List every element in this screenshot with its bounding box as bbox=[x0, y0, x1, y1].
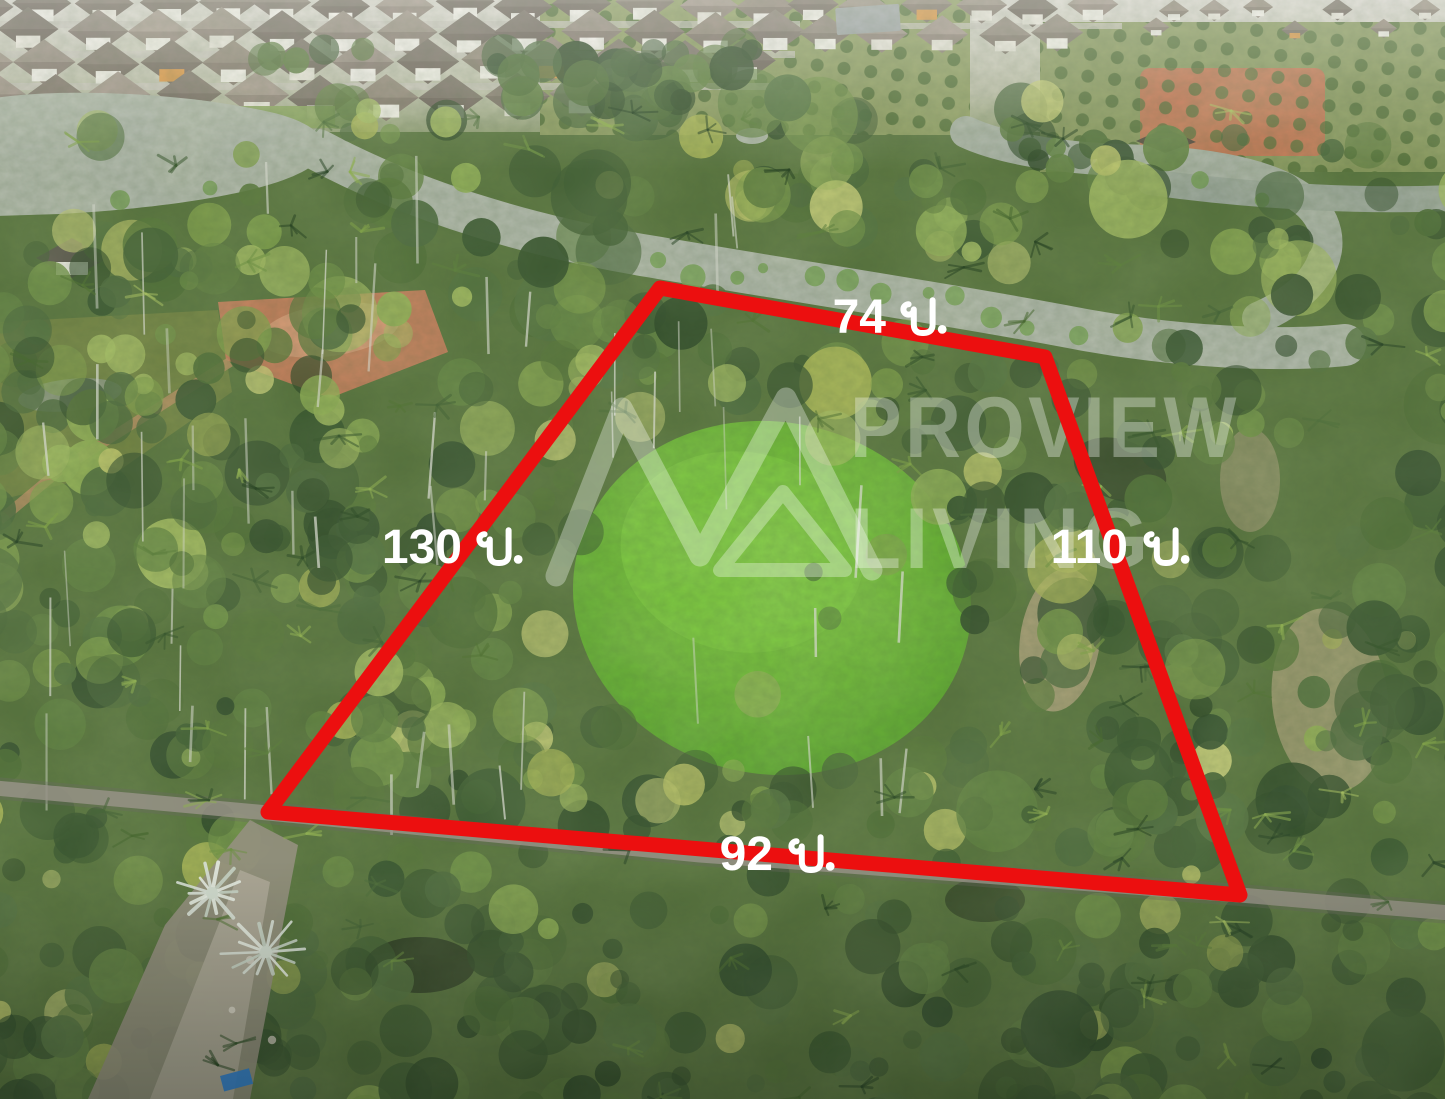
svg-text:92: 92 bbox=[720, 828, 773, 881]
svg-text:74: 74 bbox=[833, 291, 887, 344]
watermark-line1: PROVIEW bbox=[850, 380, 1240, 476]
svg-text:110: 110 bbox=[1051, 521, 1128, 574]
svg-text:130: 130 bbox=[382, 521, 462, 574]
aerial-photo: PROVIEW LIVING 74 130 110 92 bbox=[0, 0, 1445, 1099]
distance-haze bbox=[0, 0, 1445, 170]
aerial-photo-canvas: PROVIEW LIVING 74 130 110 92 bbox=[0, 0, 1445, 1099]
